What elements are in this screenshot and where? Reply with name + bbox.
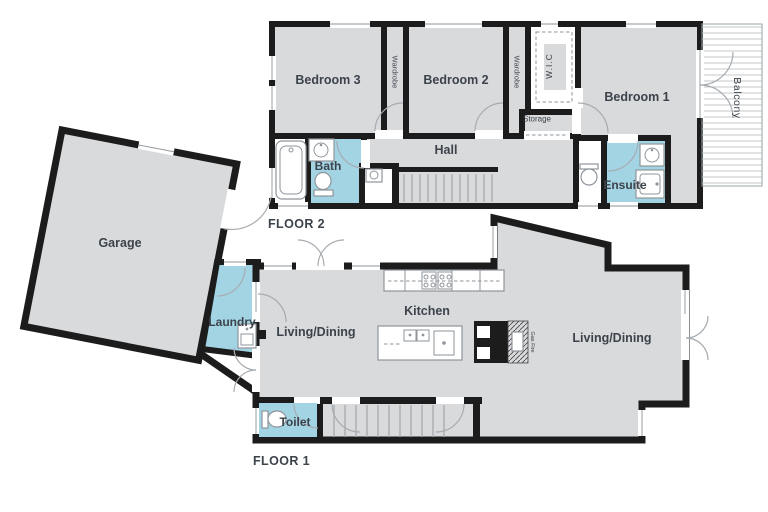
bath-label: Bath <box>315 159 342 173</box>
living-dining-left-label: Living/Dining <box>276 325 355 339</box>
bath-toilet-fixture <box>314 173 333 197</box>
floor-plan-drawing: Bedroom 3 Bedroom 2 Bedroom 1 Wardrobe W… <box>0 0 768 512</box>
kitchen-counter <box>384 270 504 291</box>
ensuite-sink-fixture <box>640 144 664 166</box>
wardrobe2-label: Wardrobe <box>513 56 522 89</box>
toilet-label: Toilet <box>279 415 310 429</box>
bedroom1-label: Bedroom 1 <box>604 90 669 104</box>
ensuite-label: Ensuite <box>603 178 647 192</box>
fireplace <box>474 321 528 363</box>
island-counter <box>378 326 462 360</box>
floor-plan-canvas: Bedroom 3 Bedroom 2 Bedroom 1 Wardrobe W… <box>0 0 768 512</box>
bathtub-fixture <box>276 141 306 199</box>
bedroom3-label: Bedroom 3 <box>295 73 360 87</box>
wic-label: W.I.C <box>544 53 554 79</box>
balcony-label: Balcony <box>731 77 743 119</box>
storage-label: Storage <box>523 115 552 124</box>
bedroom2-label: Bedroom 2 <box>423 73 488 87</box>
wardrobe1-label: Wardrobe <box>391 56 400 89</box>
living-dining-right-label: Living/Dining <box>572 331 651 345</box>
floor2-label: FLOOR 2 <box>268 217 325 231</box>
laundry-label: Laundry <box>208 315 256 329</box>
kitchen-label: Kitchen <box>404 304 450 318</box>
floor2-plan: Bedroom 3 Bedroom 2 Bedroom 1 Wardrobe W… <box>268 20 762 231</box>
gas-fire-label: Gas Fire <box>529 331 535 352</box>
floor1-label: FLOOR 1 <box>253 454 310 468</box>
ensuite-toilet-fixture <box>580 164 598 185</box>
garage-label: Garage <box>98 236 141 250</box>
closet-sink-fixture <box>366 169 382 182</box>
hall-label: Hall <box>435 143 458 157</box>
bath-sink-fixture <box>309 139 334 161</box>
